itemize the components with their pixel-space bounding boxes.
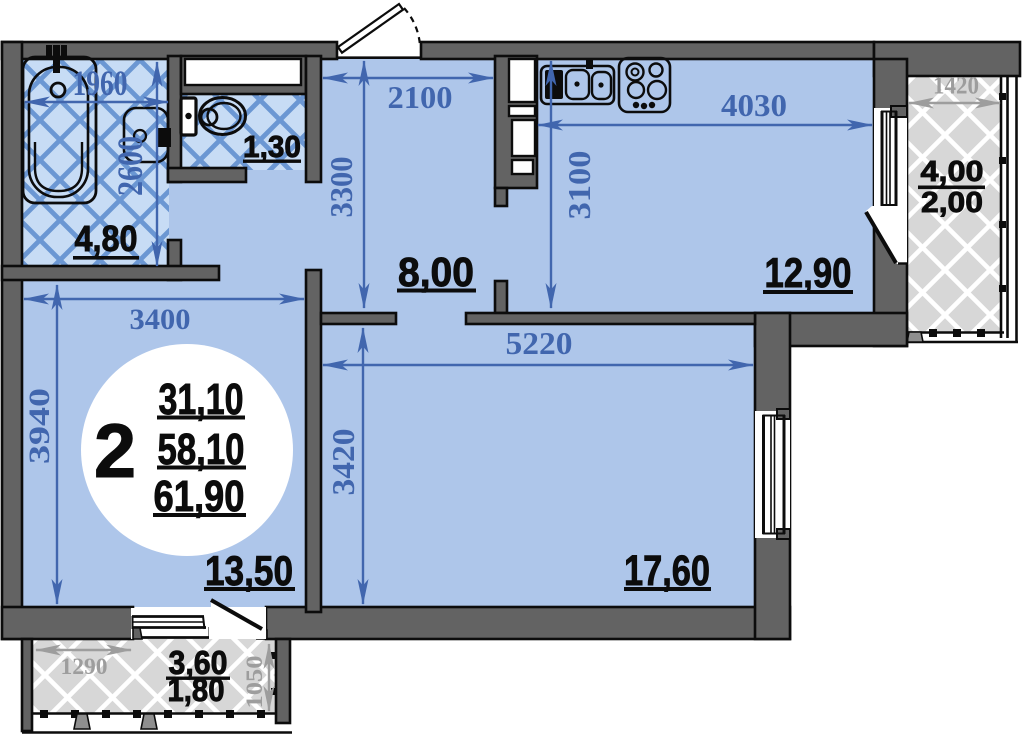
svg-text:1420: 1420 <box>933 73 979 100</box>
svg-text:3300: 3300 <box>323 157 359 218</box>
svg-text:2,00: 2,00 <box>921 187 983 219</box>
svg-text:2: 2 <box>94 409 136 494</box>
svg-text:3420: 3420 <box>325 429 361 496</box>
svg-text:2600: 2600 <box>110 136 150 196</box>
svg-text:1,30: 1,30 <box>243 129 301 164</box>
svg-text:1050: 1050 <box>242 656 267 709</box>
svg-text:12,90: 12,90 <box>765 249 852 296</box>
svg-text:13,50: 13,50 <box>205 547 293 594</box>
svg-text:1,80: 1,80 <box>168 672 225 708</box>
svg-text:8,00: 8,00 <box>398 249 474 295</box>
svg-text:3100: 3100 <box>561 151 597 220</box>
svg-text:4,80: 4,80 <box>75 218 138 259</box>
svg-text:3940: 3940 <box>23 388 56 464</box>
svg-text:3400: 3400 <box>130 303 191 336</box>
svg-text:4,00: 4,00 <box>921 156 984 188</box>
svg-text:2100: 2100 <box>388 79 453 115</box>
svg-text:5220: 5220 <box>506 325 573 361</box>
svg-text:1960: 1960 <box>73 63 128 103</box>
svg-text:1290: 1290 <box>61 654 108 679</box>
svg-text:4030: 4030 <box>721 87 787 123</box>
